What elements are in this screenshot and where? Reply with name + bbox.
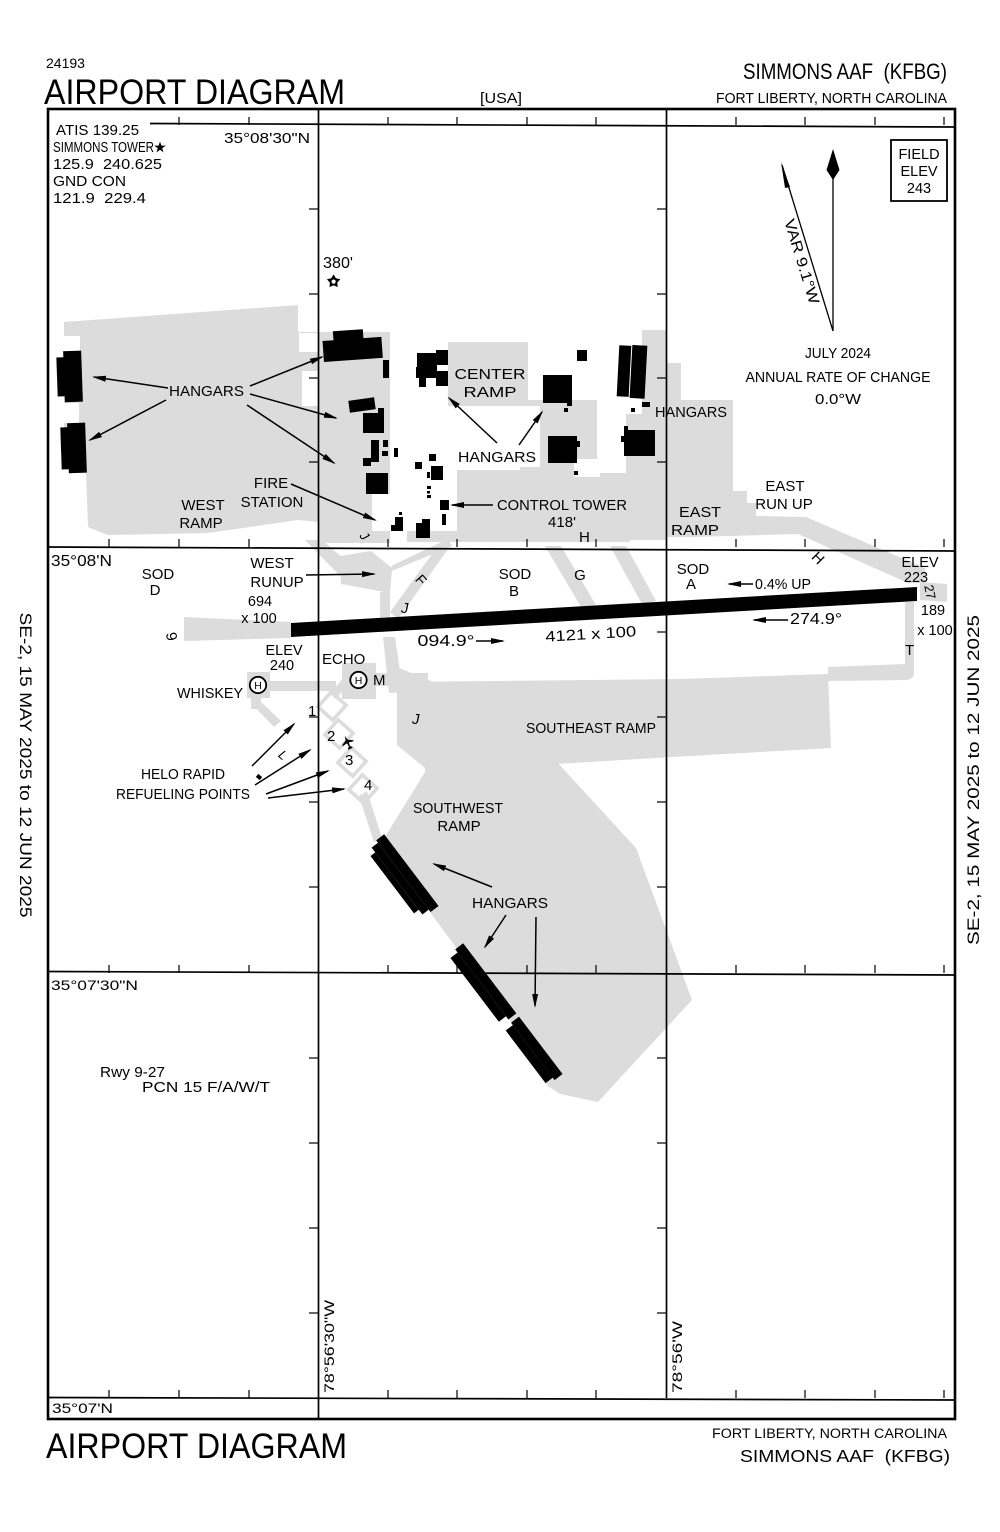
svg-text:78°56'W: 78°56'W <box>669 1320 685 1393</box>
svg-text:ELEV: ELEV <box>901 555 938 571</box>
svg-text:274.9°: 274.9° <box>790 611 842 628</box>
svg-text:H: H <box>579 529 590 546</box>
svg-text:ELEV: ELEV <box>900 164 937 180</box>
svg-text:ECHO: ECHO <box>322 651 365 668</box>
svg-text:HELO RAPID: HELO RAPID <box>141 766 225 783</box>
svg-text:H: H <box>254 680 262 692</box>
svg-text:240: 240 <box>270 658 294 674</box>
svg-text:J: J <box>411 711 420 728</box>
svg-text:ANNUAL RATE OF CHANGE: ANNUAL RATE OF CHANGE <box>746 369 931 386</box>
svg-text:2: 2 <box>327 728 335 745</box>
svg-text:WEST: WEST <box>181 497 224 514</box>
svg-text:RAMP: RAMP <box>671 522 719 539</box>
svg-text:x 100: x 100 <box>241 611 276 627</box>
svg-text:SE-2, 15 MAY 2025 to 12 JUN: SE-2, 15 MAY 2025 to 12 JUN 2025 <box>964 615 983 945</box>
svg-text:CONTROL TOWER: CONTROL TOWER <box>497 497 627 514</box>
svg-text:SOUTHEAST RAMP: SOUTHEAST RAMP <box>526 720 656 737</box>
svg-text:24193: 24193 <box>46 55 85 71</box>
svg-text:ATIS 139.25: ATIS 139.25 <box>56 123 139 139</box>
svg-text:RUNUP: RUNUP <box>250 574 303 591</box>
svg-text:M: M <box>373 672 386 689</box>
svg-text:ELEV: ELEV <box>265 643 302 659</box>
svg-text:T: T <box>905 642 914 659</box>
svg-text:CENTER: CENTER <box>455 366 526 383</box>
svg-text:PCN 15 F/A/W/T: PCN 15 F/A/W/T <box>142 1079 270 1096</box>
svg-text:STATION: STATION <box>241 494 304 511</box>
svg-text:35°07'30"N: 35°07'30"N <box>51 977 138 993</box>
svg-text:RAMP: RAMP <box>179 515 222 532</box>
svg-text:WEST: WEST <box>250 555 293 572</box>
svg-text:RAMP: RAMP <box>437 818 480 835</box>
svg-text:78°56'30"W: 78°56'30"W <box>321 1299 337 1393</box>
svg-text:SIMMONS TOWER: SIMMONS TOWER <box>53 140 154 156</box>
svg-text:HANGARS: HANGARS <box>472 895 548 912</box>
svg-text:FIELD: FIELD <box>898 147 939 163</box>
svg-text:x 100: x 100 <box>917 623 952 639</box>
svg-text:FIRE: FIRE <box>254 475 288 492</box>
svg-text:SOD: SOD <box>499 566 532 583</box>
svg-text:189: 189 <box>921 603 945 619</box>
svg-text:EAST: EAST <box>679 504 721 521</box>
svg-text:A: A <box>686 576 696 593</box>
svg-text:REFUELING POINTS: REFUELING POINTS <box>116 786 250 803</box>
svg-text:35°07'N: 35°07'N <box>52 1400 113 1416</box>
svg-text:0.0°W: 0.0°W <box>815 391 862 408</box>
svg-text:WHISKEY: WHISKEY <box>177 685 243 702</box>
svg-text:223: 223 <box>904 570 928 586</box>
svg-text:HANGARS: HANGARS <box>458 449 536 466</box>
svg-text:JULY 2024: JULY 2024 <box>805 345 871 362</box>
svg-text:35°08'30"N: 35°08'30"N <box>224 130 310 147</box>
svg-text:RUN UP: RUN UP <box>755 496 813 513</box>
svg-text:FORT LIBERTY, NORTH CAROLINA: FORT LIBERTY, NORTH CAROLINA <box>716 90 947 107</box>
svg-text:3: 3 <box>345 752 353 769</box>
svg-text:094.9°: 094.9° <box>418 633 475 650</box>
svg-text:AIRPORT DIAGRAM: AIRPORT DIAGRAM <box>46 1427 347 1466</box>
svg-text:0.4% UP: 0.4% UP <box>755 576 811 593</box>
svg-text:AIRPORT DIAGRAM: AIRPORT DIAGRAM <box>44 73 345 112</box>
svg-text:B: B <box>509 583 519 600</box>
svg-text:694: 694 <box>248 594 272 610</box>
svg-text:SIMMONS AAF (KFBG): SIMMONS AAF (KFBG) <box>740 1446 950 1466</box>
svg-text:418': 418' <box>548 514 576 531</box>
svg-text:GND CON: GND CON <box>53 174 126 190</box>
svg-text:D: D <box>150 582 161 599</box>
svg-text:380': 380' <box>323 255 353 272</box>
svg-text:SE-2, 15 MAY 2025 to 12 JUN: SE-2, 15 MAY 2025 to 12 JUN 2025 <box>16 613 35 918</box>
svg-text:G: G <box>574 567 586 584</box>
svg-text:125.9 240.625: 125.9 240.625 <box>53 157 162 173</box>
svg-text:RAMP: RAMP <box>464 384 517 401</box>
svg-text:HANGARS: HANGARS <box>169 383 244 400</box>
svg-text:SIMMONS AAF (KFBG): SIMMONS AAF (KFBG) <box>743 59 947 84</box>
svg-text:SOUTHWEST: SOUTHWEST <box>413 800 503 817</box>
svg-text:H: H <box>355 675 363 687</box>
svg-text:243: 243 <box>907 181 931 197</box>
svg-text:1: 1 <box>308 703 316 720</box>
svg-text:4: 4 <box>364 777 372 794</box>
svg-text:35°08'N: 35°08'N <box>51 553 112 570</box>
svg-text:J: J <box>400 600 409 617</box>
svg-text:121.9 229.4: 121.9 229.4 <box>53 191 146 207</box>
svg-text:FORT LIBERTY, NORTH CAROLINA: FORT LIBERTY, NORTH CAROLINA <box>712 1426 947 1441</box>
svg-text:EAST: EAST <box>765 478 804 495</box>
svg-text:[USA]: [USA] <box>480 90 522 107</box>
svg-text:SOD: SOD <box>142 566 175 583</box>
svg-text:HANGARS: HANGARS <box>655 404 727 421</box>
